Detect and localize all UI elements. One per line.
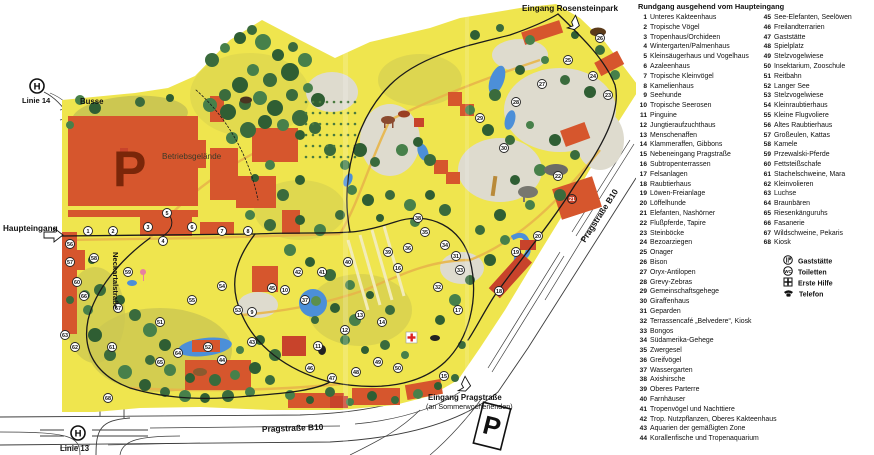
legend-item-label: Reitbahn [774,73,802,80]
tree [484,254,496,266]
orchard-dot [305,145,308,148]
station-marker-number: 57 [67,260,73,266]
legend-item: 51Reitbahn [760,72,852,82]
tree [526,121,534,129]
orchard-dot [333,134,336,137]
legend-item-number: 41 [636,405,647,415]
tree [139,379,151,391]
legend-item: 13Menschenaffen [636,131,777,141]
station-marker-number: 27 [539,82,545,88]
legend-item-number: 65 [760,209,771,219]
legend-item-label: Südamerika-Gehege [650,337,714,344]
station-marker-number: 56 [67,242,73,248]
tree [347,185,357,195]
tree [159,339,171,351]
tree [185,373,195,383]
station-marker-number: 7 [221,229,224,235]
station-marker-number: 6 [191,225,194,231]
tree [234,32,246,44]
legend-item-label: Farnhäuser [650,396,685,403]
station-marker-number: 60 [74,280,80,286]
station-marker-number: 49 [375,360,381,366]
orchard-dot [305,156,308,159]
tree [272,49,284,61]
legend-item-label: Tropische Vögel [650,24,700,31]
legend-item-number: 40 [636,395,647,405]
station-marker-number: 29 [477,116,483,122]
legend-item-label: Stelzvogelwiese [774,92,823,99]
legend-item: 22Flußpferde, Tapire [636,219,777,229]
tree [370,157,380,167]
orchard-dot [319,145,322,148]
legend-item-number: 55 [760,111,771,121]
station-marker-number: 10 [282,288,288,294]
legend-item-number: 18 [636,180,647,190]
legend-item: 1Unteres Kakteenhaus [636,13,777,23]
tree [166,94,174,102]
station-marker-number: 11 [315,344,321,350]
legend-item-label: Wassergarten [650,367,693,374]
legend-item-number: 28 [636,278,647,288]
legend-item-number: 14 [636,140,647,150]
orchard-dot [312,134,315,137]
tree [281,63,299,81]
legend-item: 23Steinböcke [636,229,777,239]
legend-item-label: Fettsteißschafe [774,161,821,168]
tree [288,42,298,52]
tree [305,257,315,267]
legend-item-number: 15 [636,150,647,160]
legend-item-number: 43 [636,424,647,434]
legend-item: 57Großeulen, Kattas [760,131,852,141]
label-eingang-pragstrasse: Eingang Pragstraße [428,393,502,402]
orchard-dot [319,156,322,159]
label-pragstrasse-b10-bottom: Pragstraße B10 [262,422,324,434]
orchard-dot [354,134,357,137]
legend-item: 66Fasanerie [760,219,852,229]
legend-item: 68Kiosk [760,238,852,248]
tree [240,122,256,138]
legend-item-label: Gaststätte [774,34,805,41]
tree [66,121,74,129]
tree [247,25,257,35]
legend-item: 49Stelzvogelwiese [760,52,852,62]
legend-item: 62Kleinvolieren [760,180,852,190]
legend-item-label: Kiosk [774,239,791,246]
station-marker-number: 61 [109,345,115,351]
legend-item-number: 47 [760,33,771,43]
legend-item: 27Oryx-Antilopen [636,268,777,278]
legend-item-number: 58 [760,140,771,150]
station-marker-number: 45 [269,286,275,292]
station-marker-number: 41 [319,270,325,276]
legend-item-number: 44 [636,434,647,444]
tree [554,189,566,201]
legend-item: 34Südamerika-Gehege [636,336,777,346]
station-marker-number: 44 [219,358,225,364]
legend-item-label: Trop. Nutzpflanzen, Oberes Kakteenhaus [650,416,777,423]
orchard-dot [326,123,329,126]
station-marker-number: 42 [295,270,301,276]
legend-item: 28Grevy-Zebras [636,278,777,288]
legend-item-label: Azaleenhaus [650,63,690,70]
legend-item: 33Bongos [636,327,777,337]
legend-item: 42Trop. Nutzpflanzen, Oberes Kakteenhaus [636,415,777,425]
legend-item-label: Bezoarziegen [650,239,692,246]
tree [135,97,145,107]
legend-item-label: Korallenfische und Tropenaquarium [650,435,759,442]
legend-item-number: 17 [636,170,647,180]
legend-item: 46Freilandterrarien [760,23,852,33]
tree [560,75,570,85]
tree [164,364,176,376]
legend-item-number: 8 [636,82,647,92]
tree [306,396,314,404]
legend-item-number: 39 [636,385,647,395]
legend-item-label: Altes Raubtierhaus [774,122,832,129]
orchard-dot [326,112,329,115]
orchard-dot [333,112,336,115]
tree [475,225,485,235]
legend-item: 53Stelzvogelwiese [760,91,852,101]
legend-item: 6Azaleenhaus [636,62,777,72]
orchard-dot [333,156,336,159]
legend-item: 5Kleinsäugerhaus und Vogelhaus [636,52,777,62]
legend-item-number: 24 [636,238,647,248]
legend-item: 64Braunbären [760,199,852,209]
orchard-dot [333,101,336,104]
legend-item: 65Riesenkänguruhs [760,209,852,219]
legend-item-number: 26 [636,258,647,268]
station-marker-number: 46 [307,366,313,372]
station-marker-number: 15 [441,374,447,380]
label-sommerwochenenden: (an Sommerwochenenden) [426,402,513,411]
station-marker-number: 16 [395,266,401,272]
legend-item-label: Wintergarten/Palmenhaus [650,43,730,50]
legend-item: 17Felsanlagen [636,170,777,180]
station-marker-number: 18 [496,289,502,295]
tree [500,235,510,245]
legend-item: 45See-Elefanten, Seelöwen [760,13,852,23]
legend-item: 58Kamele [760,140,852,150]
legend-symbol-first-aid: Erste Hilfe [783,277,833,288]
tree [439,204,451,216]
legend-item-number: 34 [636,336,647,346]
first-aid-marker [406,332,417,343]
legend-item-label: Nebeneingang Pragstraße [650,151,731,158]
orchard-dot [354,123,357,126]
tram-stop-h-icon: H [75,429,82,440]
legend-item-number: 49 [760,52,771,62]
orchard-dot [312,145,315,148]
orchard-dot [340,145,343,148]
station-marker-number: 40 [345,260,351,266]
orchard-dot [326,145,329,148]
legend-item-number: 35 [636,346,647,356]
station-marker-number: 65 [157,360,163,366]
station-marker-number: 38 [415,216,421,222]
station-marker-number: 5 [166,211,169,217]
station-marker-number: 64 [175,351,181,357]
legend-item-number: 4 [636,42,647,52]
tree [496,24,504,32]
legend-item-number: 66 [760,219,771,229]
orchard-dot [354,112,357,115]
legend-item-number: 6 [636,62,647,72]
legend-item: 43Aquarien der gemäßigten Zone [636,424,777,434]
legend-item-number: 37 [636,366,647,376]
orchard-dot [305,101,308,104]
station-marker-number: 30 [501,146,507,152]
tree [325,387,335,397]
legend-item: 67Wildschweine, Pekaris [760,229,852,239]
station-marker-number: 47 [329,376,335,382]
legend-item: 56Altes Raubtierhaus [760,121,852,131]
legend-item-number: 30 [636,297,647,307]
station-marker-number: 8 [247,229,250,235]
tree [265,375,275,385]
legend-item: 54Kleinraubtierhaus [760,101,852,111]
legend-item-number: 13 [636,131,647,141]
legend-symbol-label: Telefon [799,292,823,299]
zoo-map-page: 1234567891011121314151617181920212223242… [0,0,874,455]
tree [222,390,234,402]
legend-item: 31Geparden [636,307,777,317]
legend-item: 41Tropenvögel und Nachttiere [636,405,777,415]
tree [366,291,374,299]
station-marker-number: 51 [157,320,163,326]
station-marker-number: 12 [342,328,348,334]
tree [209,374,221,386]
tree [298,53,312,67]
legend-item: 26Bison [636,258,777,268]
station-marker-number: 55 [189,298,195,304]
legend-item: 3Tropenhaus/Orchideen [636,33,777,43]
orchard-dot [340,156,343,159]
legend-item-label: Kleinvolieren [774,181,813,188]
legend-item: 47Gaststätte [760,33,852,43]
restaurant-icon [783,255,793,265]
legend-item: 20Löffelhunde [636,199,777,209]
legend-item-number: 16 [636,160,647,170]
orchard-dot [340,123,343,126]
orchard-dot [354,101,357,104]
legend-item: 40Farnhäuser [636,395,777,405]
legend-item-label: Aquarien der gemäßigten Zone [650,425,745,432]
zoo-map-svg: 1234567891011121314151617181920212223242… [0,0,636,455]
station-marker-number: 13 [357,313,363,319]
tree [145,355,155,365]
tree [391,396,399,404]
station-marker-number: 54 [219,284,225,290]
legend-item-label: Elefanten, Nashörner [650,210,715,217]
legend-item: 16Subtropenterrassen [636,160,777,170]
orchard-dot [326,156,329,159]
legend-item-label: Freilandterrarien [774,24,825,31]
tree [515,65,525,75]
station-marker-number: 43 [249,340,255,346]
legend-item-label: Flußpferde, Tapire [650,220,706,227]
legend-item-label: Onager [650,249,673,256]
legend-item-number: 27 [636,268,647,278]
legend-item-label: Felsanlagen [650,171,688,178]
tree [505,135,515,145]
tree [434,382,442,390]
station-marker-number: 2 [112,229,115,235]
legend-item-number: 54 [760,101,771,111]
station-marker-number: 32 [435,285,441,291]
orchard-dot [354,156,357,159]
legend-item-label: Grevy-Zebras [650,279,692,286]
label-linie13: Linie 13 [60,444,90,453]
station-marker-number: 31 [453,254,459,260]
legend-item-number: 57 [760,131,771,141]
legend-item-number: 48 [760,42,771,52]
orchard-dot [340,112,343,115]
legend-item-number: 20 [636,199,647,209]
legend-item: 63Luchse [760,189,852,199]
legend-item-number: 9 [636,91,647,101]
legend-item-label: Geparden [650,308,681,315]
tree [88,328,102,342]
legend-item-label: Luchse [774,190,796,197]
station-marker-number: 1 [87,229,90,235]
tree [361,346,369,354]
orchard-dot [312,156,315,159]
legend-item-label: Klammeraffen, Gibbons [650,141,722,148]
legend-item-number: 11 [636,111,647,121]
legend-item: 61Stachelschweine, Mara [760,170,852,180]
legend-item-number: 60 [760,160,771,170]
legend-item-label: Löwen-Freianlage [650,190,705,197]
legend-item: 37Wassergarten [636,366,777,376]
tree [295,130,305,140]
label-eingang-rosensteinpark: Eingang Rosensteinpark [522,4,618,13]
legend-item-number: 63 [760,189,771,199]
legend-item-label: Terrassencafé „Belvedere“, Kiosk [650,318,752,325]
tree [66,296,74,304]
orchard-dot [340,134,343,137]
tree [413,137,423,147]
legend-item-label: Giraffenhaus [650,298,689,305]
legend-item: 8Kamelienhaus [636,82,777,92]
tree [277,189,289,201]
legend-item-label: Großeulen, Kattas [774,132,830,139]
legend-item: 29Gemeinschaftsgehege [636,287,777,297]
tree [451,374,459,382]
orchard-dot [312,123,315,126]
station-marker-number: 59 [125,270,131,276]
legend-item: 24Bezoarziegen [636,238,777,248]
label-parking-main: P [113,141,146,197]
legend-item-label: Seehunde [650,92,681,99]
legend-item-number: 53 [760,91,771,101]
legend-item-label: Tropenhaus/Orchideen [650,34,720,41]
tree [494,209,506,221]
legend-item-number: 29 [636,287,647,297]
legend-item: 2Tropische Vögel [636,23,777,33]
legend-item-label: Pinguine [650,112,677,119]
legend-item-number: 51 [760,72,771,82]
station-marker-number: 17 [455,308,461,314]
tree [413,389,423,399]
legend-title: Rundgang ausgehend vom Haupteingang [638,2,784,11]
tree [376,214,384,222]
legend-item-number: 52 [760,82,771,92]
legend-item: 55Kleine Flugvoliere [760,111,852,121]
legend-item: 9Seehunde [636,91,777,101]
orchard-dot [319,112,322,115]
legend-item-label: Spielplatz [774,43,804,50]
legend-col2: 45See-Elefanten, Seelöwen46Freilandterra… [760,13,852,248]
legend-symbol-label: Gaststätte [798,259,832,266]
legend-item: 11Pinguine [636,111,777,121]
legend-item: 60Fettsteißschafe [760,160,852,170]
legend-item-label: Insektarium, Zooschule [774,63,845,70]
legend-item: 30Giraffenhaus [636,297,777,307]
tree [295,175,305,185]
legend-item-number: 42 [636,415,647,425]
tree [584,86,596,98]
legend-item-number: 10 [636,101,647,111]
legend-item: 36Greifvögel [636,356,777,366]
legend-panel: Rundgang ausgehend vom Haupteingang 1Unt… [636,0,874,455]
tree [303,83,313,93]
legend-item-number: 46 [760,23,771,33]
tree [385,305,395,315]
tree [311,316,319,324]
legend-item-number: 56 [760,121,771,131]
legend-item-label: Riesenkänguruhs [774,210,828,217]
station-marker-number: 62 [72,345,78,351]
legend-item: 59Przewalski-Pferde [760,150,852,160]
legend-item: 10Tropische Seerosen [636,101,777,111]
map-area: 1234567891011121314151617181920212223242… [0,0,636,455]
tree [380,340,390,350]
svg-text:WC: WC [784,269,792,274]
legend-item-number: 22 [636,219,647,229]
legend-item: 15Nebeneingang Pragstraße [636,150,777,160]
tree [435,315,445,325]
tree [245,210,255,220]
tree [219,89,231,101]
legend-item-label: Löffelhunde [650,200,686,207]
orchard-dot [305,112,308,115]
legend-item-number: 50 [760,62,771,72]
tree [264,219,276,231]
legend-item-number: 3 [636,33,647,43]
tree [541,56,549,64]
tree [220,104,236,120]
legend-symbols: Gaststätte WC Toiletten Erste Hilfe Tele… [783,255,833,299]
legend-item: 39Oberes Parterre [636,385,777,395]
tram-stop-h-icon: H [34,82,41,93]
legend-item: 19Löwen-Freianlage [636,189,777,199]
station-marker-number: 50 [395,366,401,372]
tree [277,119,289,131]
tree [549,134,561,146]
legend-item: 14Klammeraffen, Gibbons [636,140,777,150]
tree [230,370,240,380]
legend-item-number: 7 [636,72,647,82]
legend-item-label: Raubtierhaus [650,181,691,188]
orchard-dot [305,123,308,126]
station-marker-number: 20 [535,234,541,240]
legend-item-label: Tropische Kleinvögel [650,73,714,80]
orchard-dot [312,101,315,104]
station-marker-number: 58 [91,256,97,262]
tree [203,98,217,112]
